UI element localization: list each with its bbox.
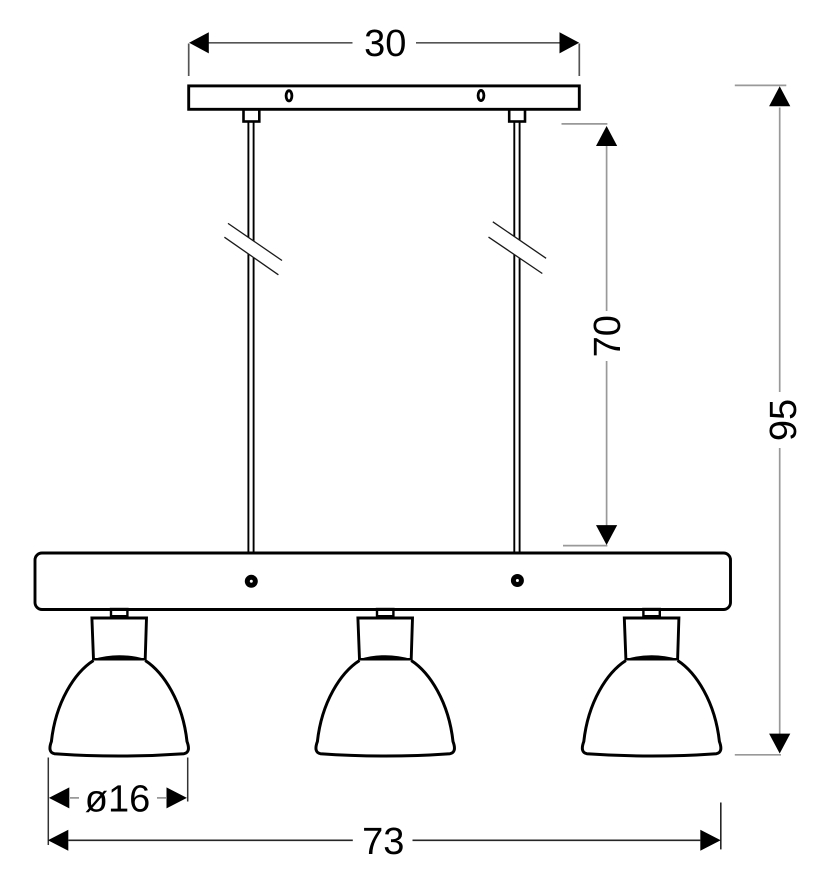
svg-text:73: 73 <box>362 821 404 863</box>
svg-text:95: 95 <box>763 399 805 441</box>
svg-text:30: 30 <box>364 23 406 65</box>
svg-text:ø16: ø16 <box>85 778 150 820</box>
svg-text:70: 70 <box>587 315 629 357</box>
